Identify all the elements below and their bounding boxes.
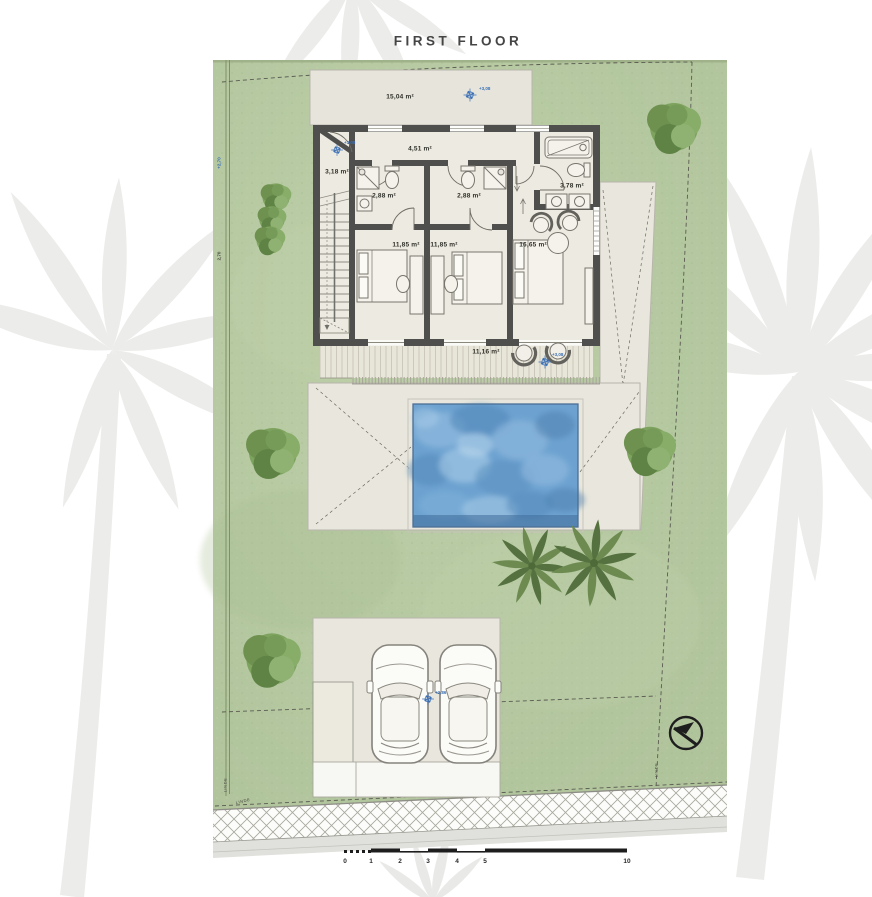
- scale-bar: [344, 849, 627, 854]
- scale-label: 10: [623, 858, 630, 865]
- scale-label: 1: [369, 858, 373, 865]
- room-label-rear-deck: 11,16 m²: [472, 349, 499, 356]
- scale-label: 3: [426, 858, 430, 865]
- level-value: +3,08: [344, 140, 355, 145]
- scale-label: 5: [483, 858, 487, 865]
- upper-terrace: [310, 70, 532, 125]
- room-label-bedroom-1: 11,85 m²: [392, 242, 419, 249]
- floor-plan-page: FIRST FLOOR 15,04 m² 3,18 m² 4,51 m² 2,8…: [0, 0, 872, 897]
- level-value: +3,08: [479, 86, 490, 91]
- swimming-pool: [408, 404, 585, 527]
- level-value: +3,08: [552, 352, 563, 357]
- room-label-bathroom-3: 3,78 m²: [560, 183, 584, 190]
- boundary-label: LINDE: [654, 763, 659, 778]
- car-1: [367, 645, 433, 763]
- boundary-label: LINDE: [223, 778, 228, 793]
- room-label-hallway: 4,51 m²: [408, 146, 432, 153]
- scale-label: 0: [343, 858, 347, 865]
- room-label-bathroom-1: 2,88 m²: [372, 193, 396, 200]
- room-label-entry: 3,18 m²: [325, 169, 349, 176]
- house: [313, 125, 600, 384]
- room-label-bathroom-2: 2,88 m²: [457, 193, 481, 200]
- room-label-bedroom-2: 11,85 m²: [430, 242, 457, 249]
- scale-label: 4: [455, 858, 459, 865]
- room-label-master-bedroom: 16,65 m²: [519, 242, 547, 249]
- edge-measurement: 2,70: [217, 252, 222, 261]
- room-label-upper-terrace: 15,04 m²: [386, 94, 414, 101]
- edge-measurement: +2,70: [217, 157, 222, 168]
- page-title: FIRST FLOOR: [394, 34, 523, 49]
- scale-label: 2: [398, 858, 402, 865]
- car-2: [435, 645, 501, 763]
- level-value: +2,86: [435, 690, 446, 695]
- site-plan-graphic: [0, 0, 872, 897]
